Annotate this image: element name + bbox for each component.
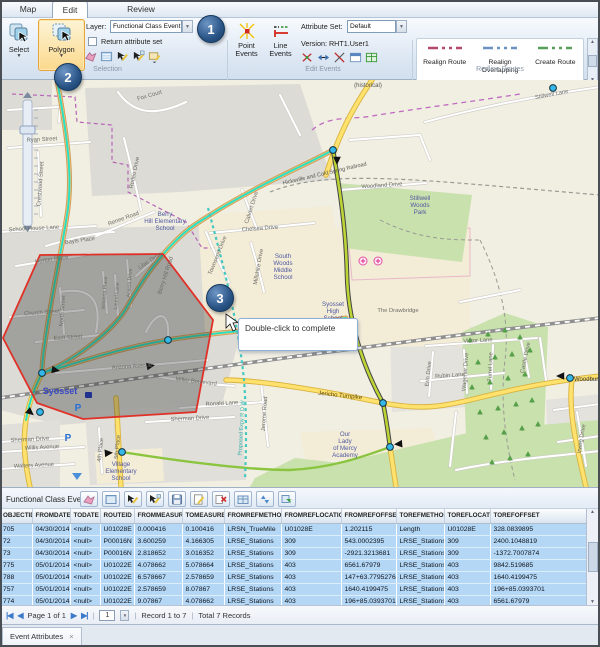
route-node[interactable]	[39, 370, 46, 377]
table-cell[interactable]: 05/01/2014	[32, 595, 70, 605]
realign-overlapping-button[interactable]: Realign Overlapping	[472, 39, 527, 83]
table-cell[interactable]: 403	[281, 559, 341, 571]
step-callout-3: 3	[206, 284, 234, 312]
reassign-event-icon[interactable]	[317, 51, 330, 64]
poi-triangle-icon	[72, 473, 82, 480]
table-cell[interactable]: LRSE_Stations	[224, 535, 281, 547]
total-records-text: Total 7 Records	[198, 611, 250, 620]
table-cell[interactable]: U01022E	[100, 571, 134, 583]
route-node[interactable]	[387, 444, 394, 451]
map-canvas[interactable]: Fox CourtRyan StreetCrestwood StreetScho…	[0, 80, 600, 487]
map-label: Hill Elementary	[144, 218, 187, 225]
column-header-torefoffset[interactable]: TOREFOFFSET	[490, 509, 586, 523]
table-cell[interactable]: 403	[444, 583, 490, 595]
table-cell[interactable]: 328.0839895	[490, 523, 586, 535]
save-button[interactable]	[168, 491, 186, 507]
table-row[interactable]: 7304/30/2014<null>P00016N2.8186523.01635…	[0, 547, 586, 559]
table-cell[interactable]: 8.07867	[182, 583, 224, 595]
map-label: Park	[414, 209, 428, 216]
table-cell[interactable]: <null>	[70, 523, 100, 535]
table-cell[interactable]: 196+85.0393701	[341, 595, 396, 605]
return-attribute-set-label: Return attribute set	[101, 37, 162, 46]
table-cell[interactable]: LRSE_Stations	[396, 559, 444, 571]
column-header-routeid[interactable]: ROUTEID	[100, 509, 134, 523]
table-cell[interactable]: 757	[0, 583, 32, 595]
table-cell[interactable]: -1372.7007874	[490, 547, 586, 559]
table-cell[interactable]: 2.578659	[182, 571, 224, 583]
map-label: (historical)	[354, 83, 382, 89]
realign-route-icon	[425, 44, 465, 54]
event-table: OBJECTIDFROMDATETODATEROUTEIDFROMMEASURE…	[0, 509, 586, 605]
application-window: Map Edit Review Select ▼ Polygon ▼ Layer…	[0, 0, 600, 647]
route-node[interactable]	[330, 147, 337, 154]
table-cell[interactable]: LRSE_Stations	[396, 571, 444, 583]
table-cell[interactable]: 04/30/2014	[32, 523, 70, 535]
polygon-tool-icon	[51, 22, 73, 46]
tab-edit[interactable]: Edit	[52, 1, 88, 18]
table-cell[interactable]: 2.578659	[134, 583, 182, 595]
ribbon-tab-bar: Map Edit Review	[0, 0, 600, 18]
table-row[interactable]: 77505/01/2014<null>U01022E4.0786625.0786…	[0, 559, 586, 571]
edit-events-tools	[301, 51, 378, 64]
edit-all-button[interactable]	[146, 491, 164, 507]
table-cell[interactable]: 4.078662	[182, 595, 224, 605]
table-cell[interactable]: <null>	[70, 559, 100, 571]
table-cell[interactable]: <null>	[70, 583, 100, 595]
table-cell[interactable]: 705	[0, 523, 32, 535]
realign-overlapping-icon	[480, 44, 520, 54]
table-cell[interactable]: 403	[444, 559, 490, 571]
map-label: P	[75, 403, 82, 414]
map-label: of Mercy	[333, 445, 358, 452]
column-header-fromreflocation[interactable]: FROMREFLOCATION	[281, 509, 341, 523]
attribute-set-label: Attribute Set:	[301, 22, 343, 31]
route-node[interactable]	[165, 337, 172, 344]
map-label: Woods	[273, 260, 292, 267]
table-cell[interactable]: 403	[281, 595, 341, 605]
edit-selection-icon[interactable]	[116, 50, 129, 63]
table-cell[interactable]: LRSE_Stations	[224, 571, 281, 583]
table-cell[interactable]: P00016N	[100, 547, 134, 559]
table-cell[interactable]: 4.078662	[134, 559, 182, 571]
layer-dropdown-arrow[interactable]: ▼	[182, 20, 193, 33]
tab-review[interactable]: Review	[118, 1, 164, 18]
table-cell[interactable]: 6561.67979	[341, 559, 396, 571]
table-cell[interactable]: LRSE_Stations	[396, 595, 444, 605]
column-header-toreflocation[interactable]: TOREFLOCATION	[444, 509, 490, 523]
table-cell[interactable]: 196+85.0393701	[490, 583, 586, 595]
map-label: Turrel Lane	[487, 352, 494, 382]
line-events-label: Line Events	[264, 42, 297, 59]
zoom-slider-track[interactable]	[23, 100, 32, 226]
selection-tools	[84, 50, 161, 63]
table-cell[interactable]: 147+63.7795276	[341, 571, 396, 583]
table-cell[interactable]: 403	[444, 571, 490, 583]
event-table-toolbar	[80, 491, 296, 507]
separator: |	[191, 611, 193, 620]
table-cell[interactable]: 9.07867	[134, 595, 182, 605]
table-cell[interactable]: 403	[281, 571, 341, 583]
page-number-input[interactable]: 1	[99, 610, 115, 621]
table-row[interactable]: 7204/30/2014<null>P00016N3.6002594.16630…	[0, 535, 586, 547]
point-events-icon	[238, 22, 256, 42]
table-cell[interactable]: P00016N	[100, 535, 134, 547]
version-text: Version: RHT1.User1	[301, 39, 369, 48]
map-label: Middle	[274, 267, 293, 274]
table-cell[interactable]: 5.078664	[182, 559, 224, 571]
table-cell[interactable]: U01022E	[100, 595, 134, 605]
select-events-button[interactable]	[80, 491, 98, 507]
table-cell[interactable]: U01028E	[100, 523, 134, 535]
table-cell[interactable]: 788	[0, 571, 32, 583]
table-cell[interactable]: 774	[0, 595, 32, 605]
attribute-set-dropdown[interactable]: Default	[347, 20, 396, 33]
point-events-button[interactable]: Point Events	[230, 20, 263, 68]
step-callout-1: 1	[197, 15, 225, 43]
map-label: Academy	[332, 452, 359, 459]
table-cell[interactable]: 1640.4199475	[341, 583, 396, 595]
table-cell[interactable]: 6.578667	[134, 571, 182, 583]
table-cell[interactable]: 05/01/2014	[32, 559, 70, 571]
table-cell[interactable]: <null>	[70, 571, 100, 583]
column-header-todate[interactable]: TODATE	[70, 509, 100, 523]
map-label: High	[327, 308, 340, 315]
edit-selected-button[interactable]	[124, 491, 142, 507]
event-table-icon[interactable]	[365, 51, 378, 64]
table-cell[interactable]: 775	[0, 559, 32, 571]
table-cell[interactable]: 1640.4199475	[490, 571, 586, 583]
table-cell[interactable]: U01022E	[100, 583, 134, 595]
table-cell[interactable]: 2400.1048819	[490, 535, 586, 547]
map-label: Berry	[158, 211, 174, 218]
map-label: School	[112, 475, 131, 482]
realign-route-button[interactable]: Realign Route	[417, 39, 472, 83]
table-row[interactable]: 78805/01/2014<null>U01022E6.5786672.5786…	[0, 571, 586, 583]
table-row[interactable]: 75705/01/2014<null>U01022E2.5786598.0786…	[0, 583, 586, 595]
map-label: The Drawbridge	[377, 308, 418, 314]
create-route-button[interactable]: Create Route	[528, 39, 583, 83]
table-cell[interactable]: 04/30/2014	[32, 547, 70, 559]
map-graphics: Fox CourtRyan StreetCrestwood StreetScho…	[0, 80, 600, 487]
table-cell[interactable]: LRSE_Stations	[396, 535, 444, 547]
map-label: School	[274, 274, 293, 281]
edit-selection-alt-icon[interactable]	[132, 50, 145, 63]
map-label: P	[65, 433, 72, 444]
tab-event-attributes[interactable]: Event Attributes×	[2, 627, 82, 646]
table-cell[interactable]: 543.0002395	[341, 535, 396, 547]
map-tooltip: Double-click to complete	[238, 318, 358, 351]
attribute-table-button[interactable]	[102, 491, 120, 507]
column-header-fromrefoffset[interactable]: FROMREFOFFSET	[341, 509, 396, 523]
table-cell[interactable]: LRSE_Stations	[396, 583, 444, 595]
route-node[interactable]	[567, 375, 574, 382]
table-cell[interactable]: 73	[0, 547, 32, 559]
table-cell[interactable]: <null>	[70, 595, 100, 605]
line-events-icon	[272, 22, 290, 42]
attribute-set-dropdown-arrow[interactable]: ▼	[396, 20, 407, 33]
select-tool-icon	[8, 22, 30, 46]
related-tables-button[interactable]	[234, 491, 252, 507]
separator: |	[134, 611, 136, 620]
table-cell[interactable]: 3.016352	[182, 547, 224, 559]
map-label: Stillwell	[410, 195, 431, 202]
select-dropdown-caret[interactable]: ▼	[17, 54, 22, 58]
zoom-slider-handle[interactable]	[20, 126, 35, 134]
table-cell[interactable]: 6561.67979	[490, 595, 586, 605]
table-cell[interactable]: 9842.519685	[490, 559, 586, 571]
scroll-up-icon[interactable]: ▲	[590, 39, 595, 45]
next-page-button[interactable]: ▶	[71, 611, 76, 620]
table-cell[interactable]: 309	[281, 547, 341, 559]
map-label: Woods	[410, 202, 429, 209]
route-node[interactable]	[380, 400, 387, 407]
map-label: Our	[340, 431, 350, 438]
table-cell[interactable]: 0.000416	[134, 523, 182, 535]
selection-options-icon[interactable]	[148, 50, 161, 63]
table-cell[interactable]: U01022E	[100, 559, 134, 571]
map-label: School	[156, 225, 175, 232]
step-callout-2: 2	[54, 63, 82, 91]
column-header-fromrefmethod[interactable]: FROMREFMETHOD	[224, 509, 281, 523]
table-cell[interactable]: <null>	[70, 535, 100, 547]
line-events-button[interactable]: Line Events	[264, 20, 297, 68]
column-header-fromdate[interactable]: FROMDATE	[32, 509, 70, 523]
previous-page-button[interactable]: ◀	[17, 611, 22, 620]
route-node[interactable]	[37, 409, 44, 416]
scrollbar-thumb[interactable]	[588, 55, 597, 67]
table-cell[interactable]: Length	[396, 523, 444, 535]
ribbon-scrollbar[interactable]: ▲▼	[587, 38, 598, 84]
close-icon[interactable]: ×	[69, 632, 73, 641]
column-header-torefmethod[interactable]: TOREFMETHOD	[396, 509, 444, 523]
table-cell[interactable]: 309	[281, 535, 341, 547]
map-label: Village	[112, 461, 131, 468]
export-records-button[interactable]	[278, 491, 296, 507]
table-cell[interactable]: 05/01/2014	[32, 583, 70, 595]
table-cell[interactable]: 309	[444, 547, 490, 559]
event-window-icon[interactable]	[349, 51, 362, 64]
polygon-dropdown-caret[interactable]: ▼	[59, 54, 64, 58]
event-table-panel-header: Functional Class Event	[0, 487, 600, 509]
table-cell[interactable]: 0.100416	[182, 523, 224, 535]
table-cell[interactable]: 72	[0, 535, 32, 547]
table-cell[interactable]: -2921.3213681	[341, 547, 396, 559]
table-cell[interactable]: 403	[444, 595, 490, 605]
table-cell[interactable]: LRSE_Stations	[224, 559, 281, 571]
scroll-up-icon[interactable]: ▲	[590, 509, 595, 515]
map-label: Ryan Street	[27, 136, 58, 144]
table-cell[interactable]: 403	[281, 583, 341, 595]
table-row[interactable]: 70504/30/2014<null>U01028E0.0004160.1004…	[0, 523, 586, 535]
table-cell[interactable]: 4.166305	[182, 535, 224, 547]
lasso-select-icon[interactable]	[84, 50, 97, 63]
bottom-tab-bar: Event Attributes×	[0, 624, 600, 645]
table-cell[interactable]: LRSE_Stations	[224, 595, 281, 605]
select-button[interactable]: Select ▼	[2, 20, 36, 68]
sort-records-button[interactable]	[256, 491, 274, 507]
table-cell[interactable]: 309	[444, 535, 490, 547]
first-page-button[interactable]: |◀	[6, 611, 12, 620]
table-cell[interactable]: U01028E	[444, 523, 490, 535]
return-attribute-set-checkbox[interactable]	[88, 37, 97, 46]
event-table-title: Functional Class Event	[6, 495, 88, 504]
column-header-frommeasure[interactable]: FROMMEASURE	[134, 509, 182, 523]
edit-attributes-button[interactable]	[190, 491, 208, 507]
table-cell[interactable]: 2.818652	[134, 547, 182, 559]
map-label: Jerome Road	[261, 396, 269, 431]
point-events-label: Point Events	[230, 42, 263, 59]
modify-event-icon[interactable]	[301, 51, 314, 64]
table-cell[interactable]: LRSE_Stations	[396, 547, 444, 559]
create-route-icon	[535, 44, 575, 54]
table-cell[interactable]: LRSN_TrueMile	[224, 523, 281, 535]
column-header-tomeasure[interactable]: TOMEASURE	[182, 509, 224, 523]
map-label: Syosset	[322, 301, 344, 308]
split-event-icon[interactable]	[333, 51, 346, 64]
table-cell[interactable]: 05/01/2014	[32, 571, 70, 583]
tab-map[interactable]: Map	[8, 1, 48, 18]
map-label: Jericho Turnpike	[318, 391, 363, 402]
map-label: Syosset	[43, 386, 78, 396]
ribbon: Select ▼ Polygon ▼ Layer: Functional Cla…	[0, 18, 600, 80]
train-station-icon	[85, 392, 92, 398]
map-label: Lady	[338, 438, 352, 445]
column-header-objectid[interactable]: OBJECTID	[0, 509, 32, 523]
map-label: Woodbury	[574, 377, 600, 383]
table-cell[interactable]: LRSE_Stations	[224, 583, 281, 595]
table-cell[interactable]: U01028E	[281, 523, 341, 535]
edit-events-group-label: Edit Events	[268, 66, 378, 73]
event-attributes-tab-label: Event Attributes	[10, 632, 63, 641]
map-label: South	[275, 253, 292, 260]
map-label: Elementary	[105, 468, 137, 475]
table-pagination-bar: |◀ ◀ Page 1 of 1 ▶ ▶| | 1 ▼ | Record 1 t…	[0, 605, 600, 624]
redline-routes-panel: Realign Route Realign Overlapping Create…	[416, 38, 584, 84]
table-row[interactable]: 77405/01/2014<null>U01022E9.078674.07866…	[0, 595, 586, 605]
redline-routes-group-label: Redline Routes	[430, 66, 570, 73]
record-range-text: Record 1 to 7	[141, 611, 186, 620]
page-indicator: Page 1 of 1	[28, 611, 66, 620]
table-cell[interactable]: 1.202115	[341, 523, 396, 535]
table-header-row: OBJECTIDFROMDATETODATEROUTEIDFROMMEASURE…	[0, 509, 586, 523]
delete-event-button[interactable]	[212, 491, 230, 507]
attribute-list-icon[interactable]	[100, 50, 113, 63]
table-cell[interactable]: 04/30/2014	[32, 535, 70, 547]
last-page-button[interactable]: ▶|	[81, 611, 87, 620]
table-cell[interactable]: <null>	[70, 547, 100, 559]
scrollbar-thumb[interactable]	[588, 542, 598, 572]
layer-dropdown[interactable]: Functional Class Event	[110, 20, 182, 33]
table-cell[interactable]: LRSE_Stations	[224, 547, 281, 559]
table-cell[interactable]: 3.600259	[134, 535, 182, 547]
layer-label: Layer:	[86, 22, 106, 31]
table-scrollbar[interactable]: ▲▼	[586, 509, 598, 605]
separator: |	[92, 611, 94, 620]
page-number-dropdown-arrow[interactable]: ▼	[120, 610, 129, 621]
